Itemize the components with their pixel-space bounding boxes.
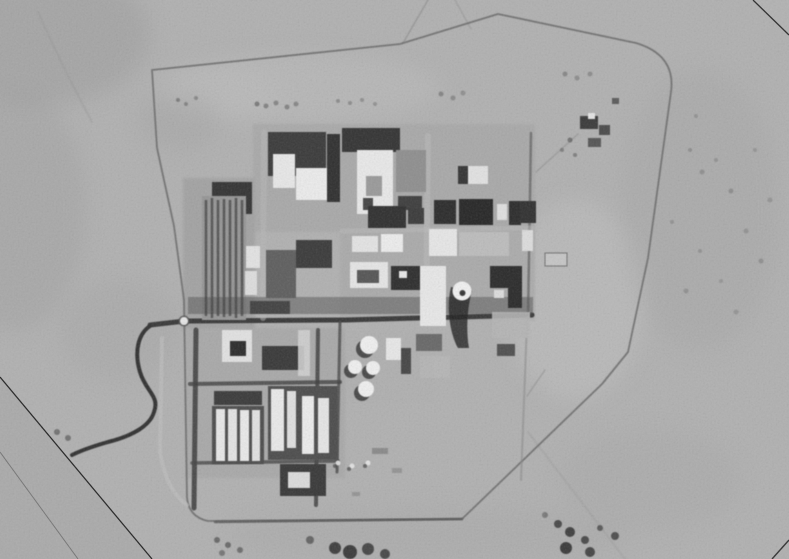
satellite-photo [0,0,789,559]
film-grain-screen [0,0,789,559]
satellite-photo-figure [0,0,789,559]
